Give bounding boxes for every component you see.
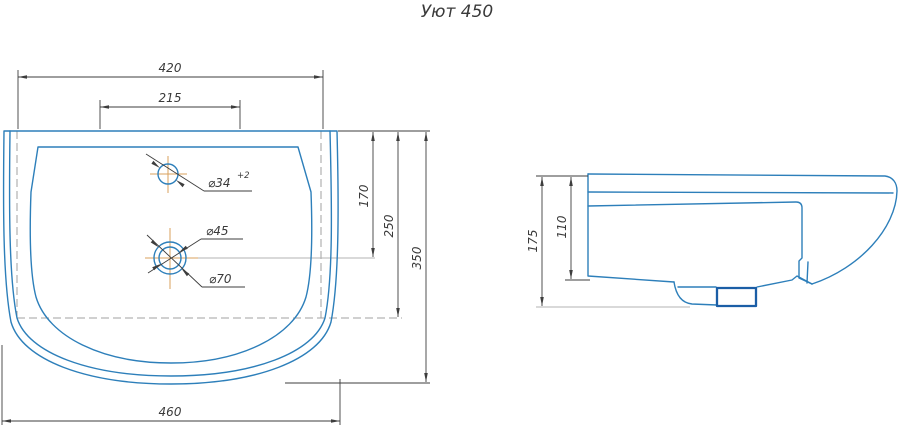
side-view-drain-outlet-rect [717, 288, 756, 306]
arrowhead [540, 297, 544, 306]
top-view-basin-outline [30, 147, 312, 363]
side-view-back-and-bottom [588, 174, 674, 282]
arrowhead [371, 132, 375, 141]
side-view-trap-left [674, 282, 717, 305]
dim-faucet-hole-label: ⌀34 [208, 176, 231, 190]
arrowhead [331, 419, 340, 423]
side-view-basin-profile [588, 202, 812, 284]
arrowhead [371, 248, 375, 257]
arrowhead [18, 75, 27, 79]
arrowheads [2, 75, 573, 423]
dim-drain-inner-label: ⌀45 [206, 224, 229, 238]
arrowhead [314, 75, 323, 79]
arrowhead [2, 419, 11, 423]
arrowhead [424, 132, 428, 141]
dim-350-label: 350 [410, 246, 424, 269]
dim-faucet-hole-tolerance: +2 [237, 171, 250, 181]
arrowhead [424, 373, 428, 382]
labels: Уют 450 420 215 460 170 250 350 ⌀34 +2 ⌀… [159, 2, 569, 419]
side-view-overflow-wall [807, 262, 808, 283]
arrowhead [569, 177, 573, 186]
sink-outlines [4, 131, 897, 384]
arrowhead [176, 180, 185, 187]
arrowhead [396, 308, 400, 317]
side-view-top-and-front-curve [588, 174, 897, 284]
technical-drawing: Уют 450 420 215 460 170 250 350 ⌀34 +2 ⌀… [0, 0, 900, 429]
dim-170-label: 170 [357, 184, 371, 207]
dim-110-label: 110 [555, 215, 569, 238]
drawing-page: Уют 450 420 215 460 170 250 350 ⌀34 +2 ⌀… [0, 0, 900, 429]
drain-outlet [717, 288, 756, 306]
arrowhead [151, 240, 159, 247]
arrowhead [100, 105, 109, 109]
dim-175-label: 175 [526, 230, 540, 253]
arrowhead [231, 105, 240, 109]
arrowhead [569, 270, 573, 279]
dim-460-label: 460 [159, 405, 182, 419]
dim-250-label: 250 [382, 214, 396, 237]
dimension-lines [2, 70, 590, 425]
dim-drain-outer-label: ⌀70 [209, 272, 232, 286]
arrowhead [396, 132, 400, 141]
drawing-title: Уют 450 [421, 2, 493, 22]
light-extension-lines [198, 258, 690, 307]
arrowhead [182, 269, 190, 276]
side-view-under-rim-line [588, 192, 893, 193]
dim-215-label: 215 [159, 91, 182, 105]
leader-d34 [146, 154, 204, 191]
arrowhead [540, 177, 544, 186]
side-view-bottom-right [757, 276, 812, 287]
dim-420-label: 420 [159, 61, 182, 75]
